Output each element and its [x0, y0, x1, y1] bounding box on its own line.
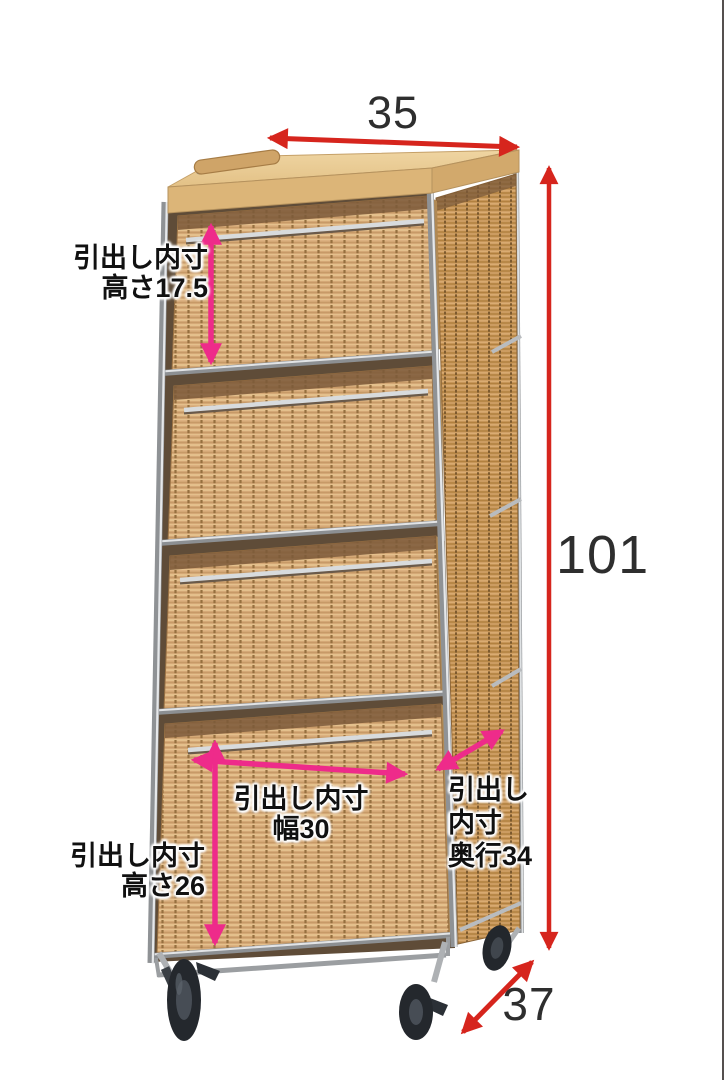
drawer-inner-depth-line1: 引出し — [448, 774, 532, 807]
arrow-top-width — [270, 138, 517, 147]
drawer-2 — [168, 366, 444, 542]
drawer-inner-width-label: 引出し内寸 幅30 — [234, 784, 369, 844]
drawer4-inner-height-line1: 引出し内寸 — [70, 841, 205, 871]
product-dimension-diagram: 35 101 37 引出し内寸 高さ17.5 引出し内寸 高さ26 引出し内寸 … — [0, 0, 724, 1080]
drawer-inner-width-line2: 幅30 — [234, 814, 369, 844]
drawer1-inner-height-line1: 引出し内寸 — [73, 243, 208, 273]
drawer-inner-depth-label: 引出し 内寸 奥行34 — [448, 774, 532, 873]
total-height-value: 101 — [556, 528, 649, 582]
drawer1-inner-height-line2: 高さ17.5 — [73, 273, 208, 303]
drawer-inner-depth-line2: 内寸 — [448, 807, 532, 840]
drawer4-inner-height-line2: 高さ26 — [70, 871, 205, 901]
drawer-3 — [164, 536, 449, 710]
drawer4-inner-height-label: 引出し内寸 高さ26 — [70, 841, 205, 901]
drawer-inner-width-line1: 引出し内寸 — [234, 784, 369, 814]
caster-front-left — [159, 953, 220, 1041]
drawer-inner-depth-line3: 奥行34 — [448, 840, 532, 873]
top-width-value: 35 — [367, 90, 419, 135]
drawer1-inner-height-label: 引出し内寸 高さ17.5 — [73, 243, 208, 303]
bottom-depth-value: 37 — [502, 981, 555, 1027]
